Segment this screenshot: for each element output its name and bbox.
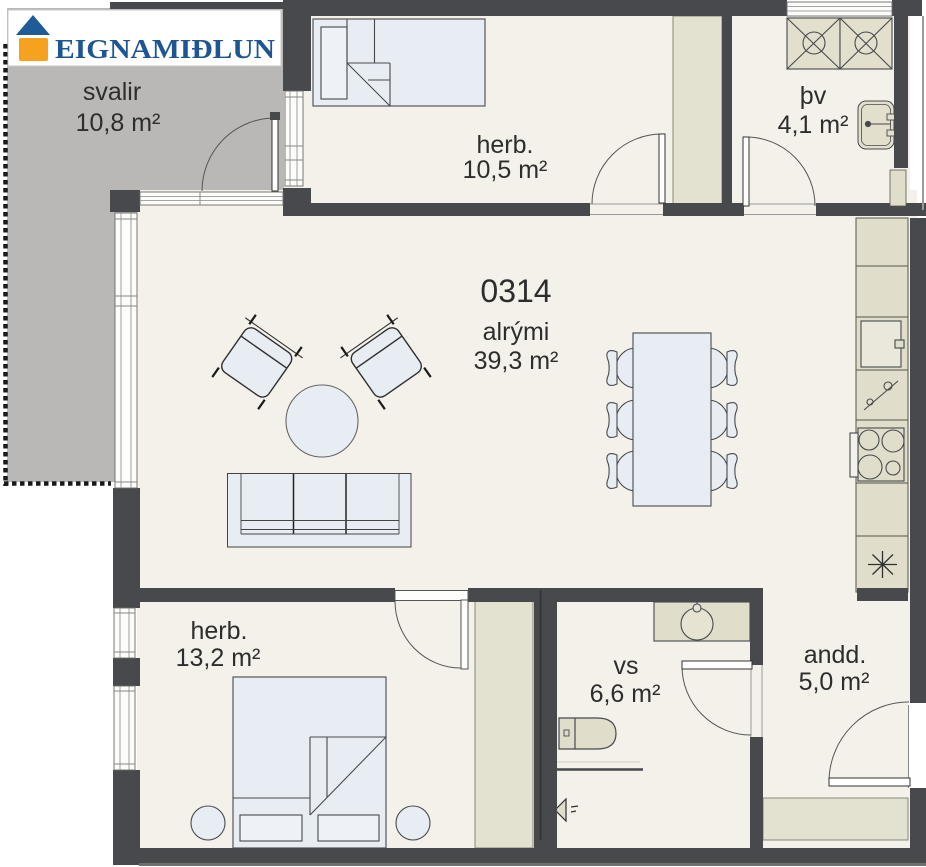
svg-text:EIGNAMIÐLUN: EIGNAMIÐLUN bbox=[55, 34, 276, 64]
svg-text:6,6 m²: 6,6 m² bbox=[590, 680, 661, 708]
svg-text:5,0 m²: 5,0 m² bbox=[799, 668, 870, 696]
svg-text:herb.: herb. bbox=[191, 617, 248, 645]
svg-text:13,2 m²: 13,2 m² bbox=[176, 644, 261, 672]
svg-text:alrými: alrými bbox=[483, 318, 550, 346]
svg-text:þv: þv bbox=[800, 82, 827, 110]
svg-text:andd.: andd. bbox=[804, 641, 867, 669]
svg-text:10,5 m²: 10,5 m² bbox=[463, 156, 548, 184]
svg-text:10,8 m²: 10,8 m² bbox=[76, 109, 161, 137]
svg-text:vs: vs bbox=[614, 652, 639, 680]
svg-text:39,3 m²: 39,3 m² bbox=[474, 347, 559, 375]
svg-text:svalir: svalir bbox=[83, 78, 141, 106]
svg-text:0314: 0314 bbox=[480, 273, 551, 309]
svg-text:4,1 m²: 4,1 m² bbox=[778, 111, 849, 139]
svg-text:herb.: herb. bbox=[477, 131, 534, 159]
